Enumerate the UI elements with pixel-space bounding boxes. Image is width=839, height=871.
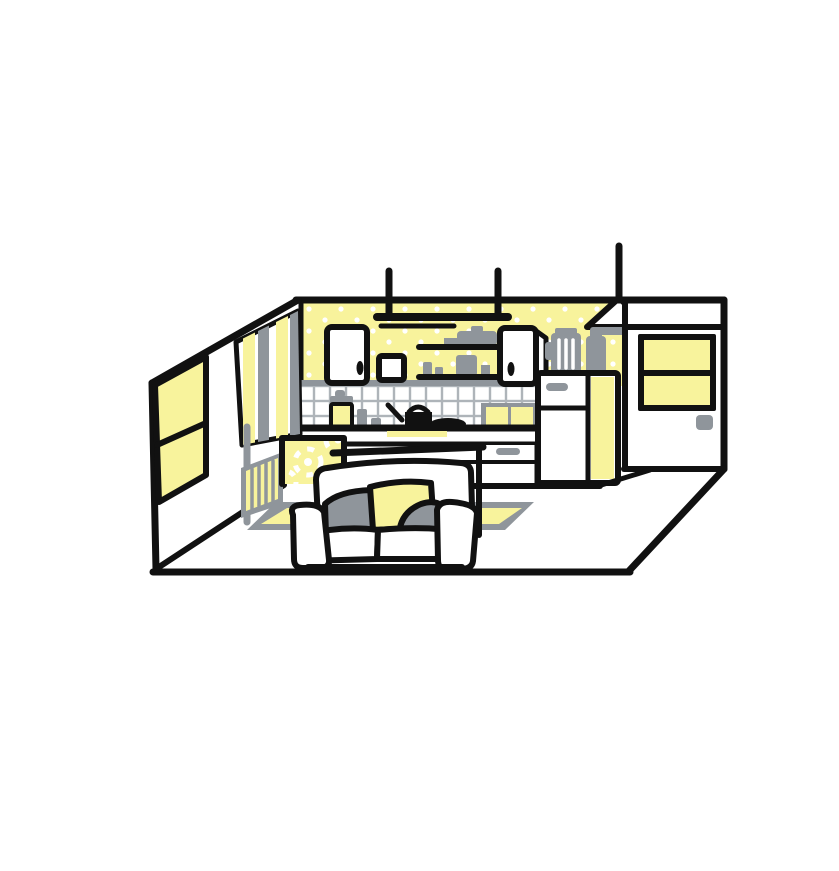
door-window-pane-bottom: [644, 376, 710, 405]
mini-yellow-cabinet: [481, 403, 538, 428]
mini-cabinet-door-right: [511, 407, 533, 425]
fridge-yellow-side: [591, 377, 614, 479]
door-window-pane-top: [644, 340, 710, 370]
armrest-left: [292, 505, 329, 568]
canister: [456, 355, 477, 376]
counter-yellow-accent: [387, 431, 447, 437]
cabinet-left-handle: [357, 361, 364, 375]
pot-lid-knob: [471, 326, 483, 332]
armrest-right: [437, 502, 477, 569]
door-handle: [696, 415, 713, 430]
drawer-handle: [496, 448, 520, 455]
cabinet-right-handle: [508, 362, 515, 376]
pot-large: [457, 331, 497, 346]
spice-box: [379, 356, 404, 380]
refrigerator: [538, 373, 618, 483]
storage-jar: [586, 336, 606, 374]
mini-cabinet-door-left: [486, 407, 508, 425]
illustration-canvas: Flat line-art illustration of a studio i…: [40, 16, 839, 855]
floor-right-diagonal: [628, 469, 724, 572]
fridge-handle: [546, 383, 568, 391]
room-illustration: [40, 16, 839, 855]
sofa: [292, 461, 477, 569]
wall-cabinet-right: [500, 328, 536, 384]
blender-lid: [555, 328, 577, 335]
back-door: [625, 301, 722, 469]
bottle-small: [423, 362, 432, 376]
